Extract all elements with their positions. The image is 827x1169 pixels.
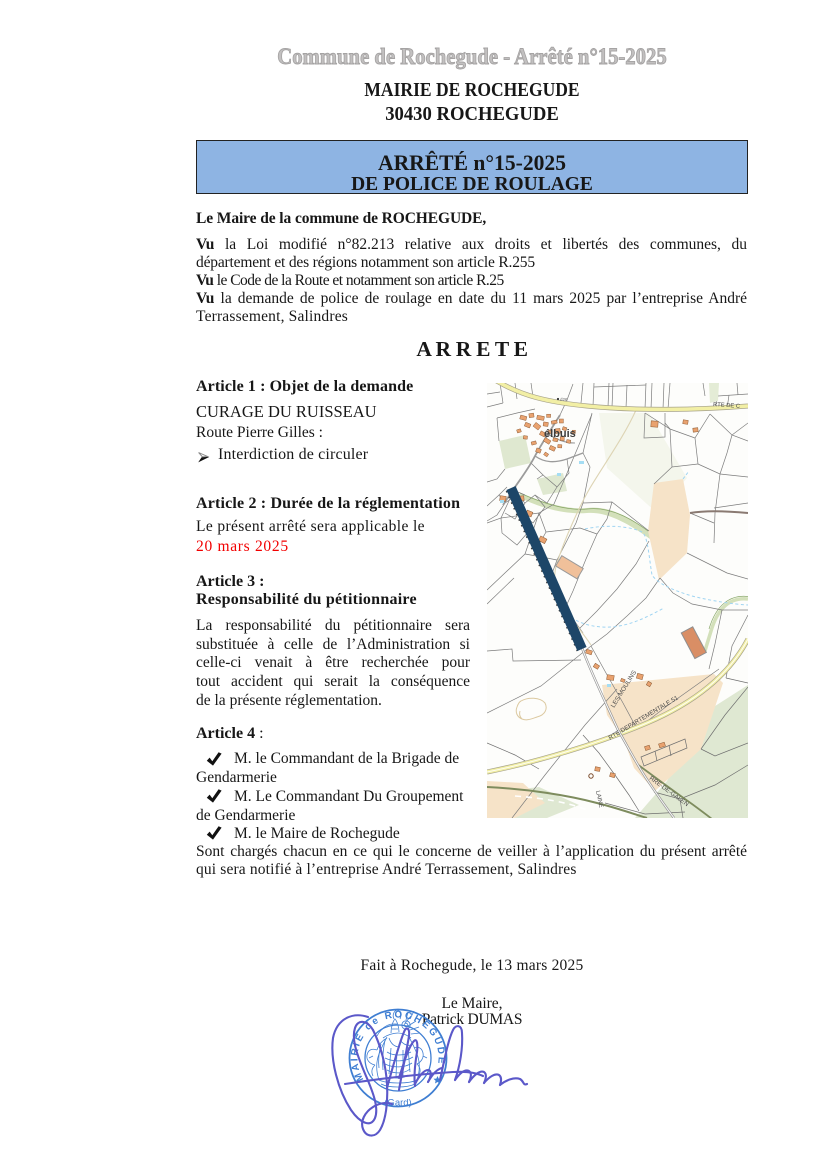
svg-text:d26: d26 [560, 397, 568, 402]
svg-text:élbuis: élbuis [544, 428, 576, 440]
